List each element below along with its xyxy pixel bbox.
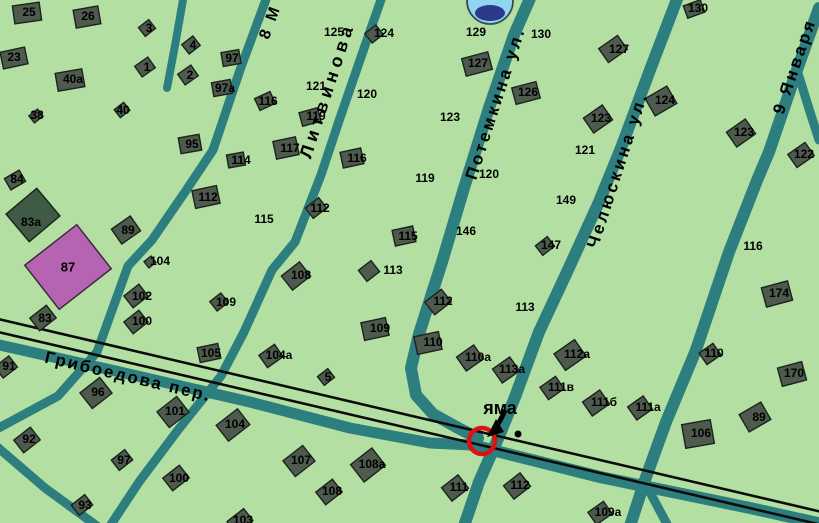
house-number-label: 114 <box>231 153 251 167</box>
house-number-label: 147 <box>541 238 561 252</box>
house-number-label: 111в <box>548 380 574 394</box>
house-number-label: 23 <box>7 50 21 64</box>
house-number-label: 116 <box>743 239 763 253</box>
house-number-label: 130 <box>531 27 551 41</box>
house-number-label: 3 <box>146 21 153 35</box>
house-number-label: 112 <box>433 294 453 308</box>
house-number-label: 104 <box>225 417 245 431</box>
house-number-label: 105 <box>201 346 221 360</box>
house-number-label: 97 <box>117 453 131 467</box>
house-number-label: 84 <box>10 172 24 186</box>
house-number-label: 102 <box>132 289 152 303</box>
house-number-label: 104а <box>266 348 293 362</box>
house-number-label: 103 <box>233 513 253 523</box>
house-number-label: 4 <box>190 38 197 52</box>
house-number-label: 122 <box>794 147 814 161</box>
house-number-label: 113 <box>515 300 535 314</box>
house-number-label: 129 <box>466 25 486 39</box>
house-number-label: 113а <box>499 362 525 376</box>
house-number-label: 91 <box>2 359 16 373</box>
map-svg: 83а 87 25262340а34129797а384095114116848… <box>0 0 819 523</box>
house-number-label: 89 <box>121 223 135 237</box>
house-number-label: 106 <box>691 426 711 440</box>
house-number-label: 112а <box>564 347 590 361</box>
house-number-label: 96 <box>91 385 105 399</box>
house-number-label: 111а <box>635 400 661 414</box>
house-number-label: 26 <box>81 9 95 23</box>
house-number-label: 124 <box>655 93 675 107</box>
house-number-label: 112 <box>510 478 530 492</box>
house-number-label: 40 <box>116 103 130 117</box>
house-number-label: 112 <box>198 190 218 204</box>
house-number-label: 111 <box>450 480 469 494</box>
house-number-label: 95 <box>185 137 199 151</box>
house-number-label: 109 <box>370 321 390 335</box>
house-number-label: 174 <box>769 286 789 300</box>
house-number-label: 109 <box>216 295 236 309</box>
house-number-label: 25 <box>22 5 36 19</box>
house-number-label: 123 <box>591 111 611 125</box>
house-number-label: 127 <box>609 42 629 56</box>
house-number-label: 110а <box>465 350 491 364</box>
house-number-label: 121 <box>575 143 595 157</box>
house-number-label: 126 <box>518 85 538 99</box>
house-number-label: 107 <box>291 453 311 467</box>
house-number-label: 83 <box>38 311 52 325</box>
house-number-label: 112 <box>310 201 330 215</box>
house-number-label: 108а <box>359 457 386 471</box>
house-number-label: 111б <box>591 395 617 409</box>
house-number-label: 124 <box>374 26 394 40</box>
house-number-label: 93 <box>78 498 92 512</box>
house-number-label: 97а <box>215 81 235 95</box>
house-number-label: 38 <box>30 108 44 122</box>
house-number-label: 127 <box>468 56 488 70</box>
pothole-label: яма <box>482 398 518 418</box>
house-number-87: 87 <box>61 260 75 275</box>
map-canvas[interactable]: 83а 87 25262340а34129797а384095114116848… <box>0 0 819 523</box>
house-number-label: 116 <box>347 151 367 165</box>
junction-dot <box>515 431 522 438</box>
house-number-label: 110 <box>704 346 724 360</box>
house-number-label: 123 <box>440 110 460 124</box>
house-number-83a: 83а <box>21 215 41 229</box>
house-number-label: 123 <box>734 125 754 139</box>
house-number-label: 108 <box>291 268 311 282</box>
house-number-label: 104 <box>150 254 170 268</box>
house-number-label: 113 <box>383 263 403 277</box>
house-number-label: 101 <box>165 404 185 418</box>
house-number-label: 115 <box>254 212 274 226</box>
house-number-label: 119 <box>415 171 435 185</box>
house-number-label: 170 <box>784 366 804 380</box>
house-number-label: 108 <box>322 484 342 498</box>
water-tower-base <box>475 5 505 21</box>
house-number-label: 109а <box>595 505 622 519</box>
house-number-label: 110 <box>423 335 443 349</box>
house-number-label: 146 <box>456 224 476 238</box>
house-number-label: 2 <box>187 68 194 82</box>
house-number-label: 92 <box>22 432 36 446</box>
house-number-label: 89 <box>752 410 766 424</box>
house-number-label: 120 <box>357 87 377 101</box>
house-number-label: 116 <box>258 94 278 108</box>
house-number-label: 100 <box>169 471 189 485</box>
house-number-label: 149 <box>556 193 576 207</box>
house-number-label: 100 <box>132 314 152 328</box>
house-number-label: 5 <box>325 370 332 384</box>
house-number-label: 40а <box>63 72 83 86</box>
house-number-label: 130 <box>688 1 708 15</box>
house-number-label: 1 <box>144 60 151 74</box>
house-number-label: 97 <box>225 51 239 65</box>
house-number-label: 115 <box>398 229 418 243</box>
